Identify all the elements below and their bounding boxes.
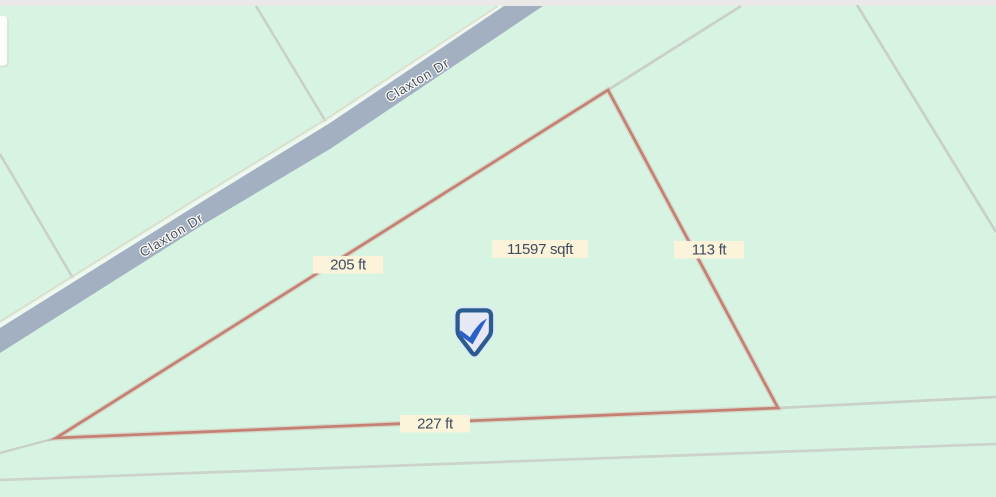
svg-text:113 ft: 113 ft xyxy=(692,242,728,259)
svg-text:205 ft: 205 ft xyxy=(330,257,367,274)
svg-text:11597 sqft: 11597 sqft xyxy=(507,241,574,258)
svg-text:227 ft: 227 ft xyxy=(417,416,454,433)
